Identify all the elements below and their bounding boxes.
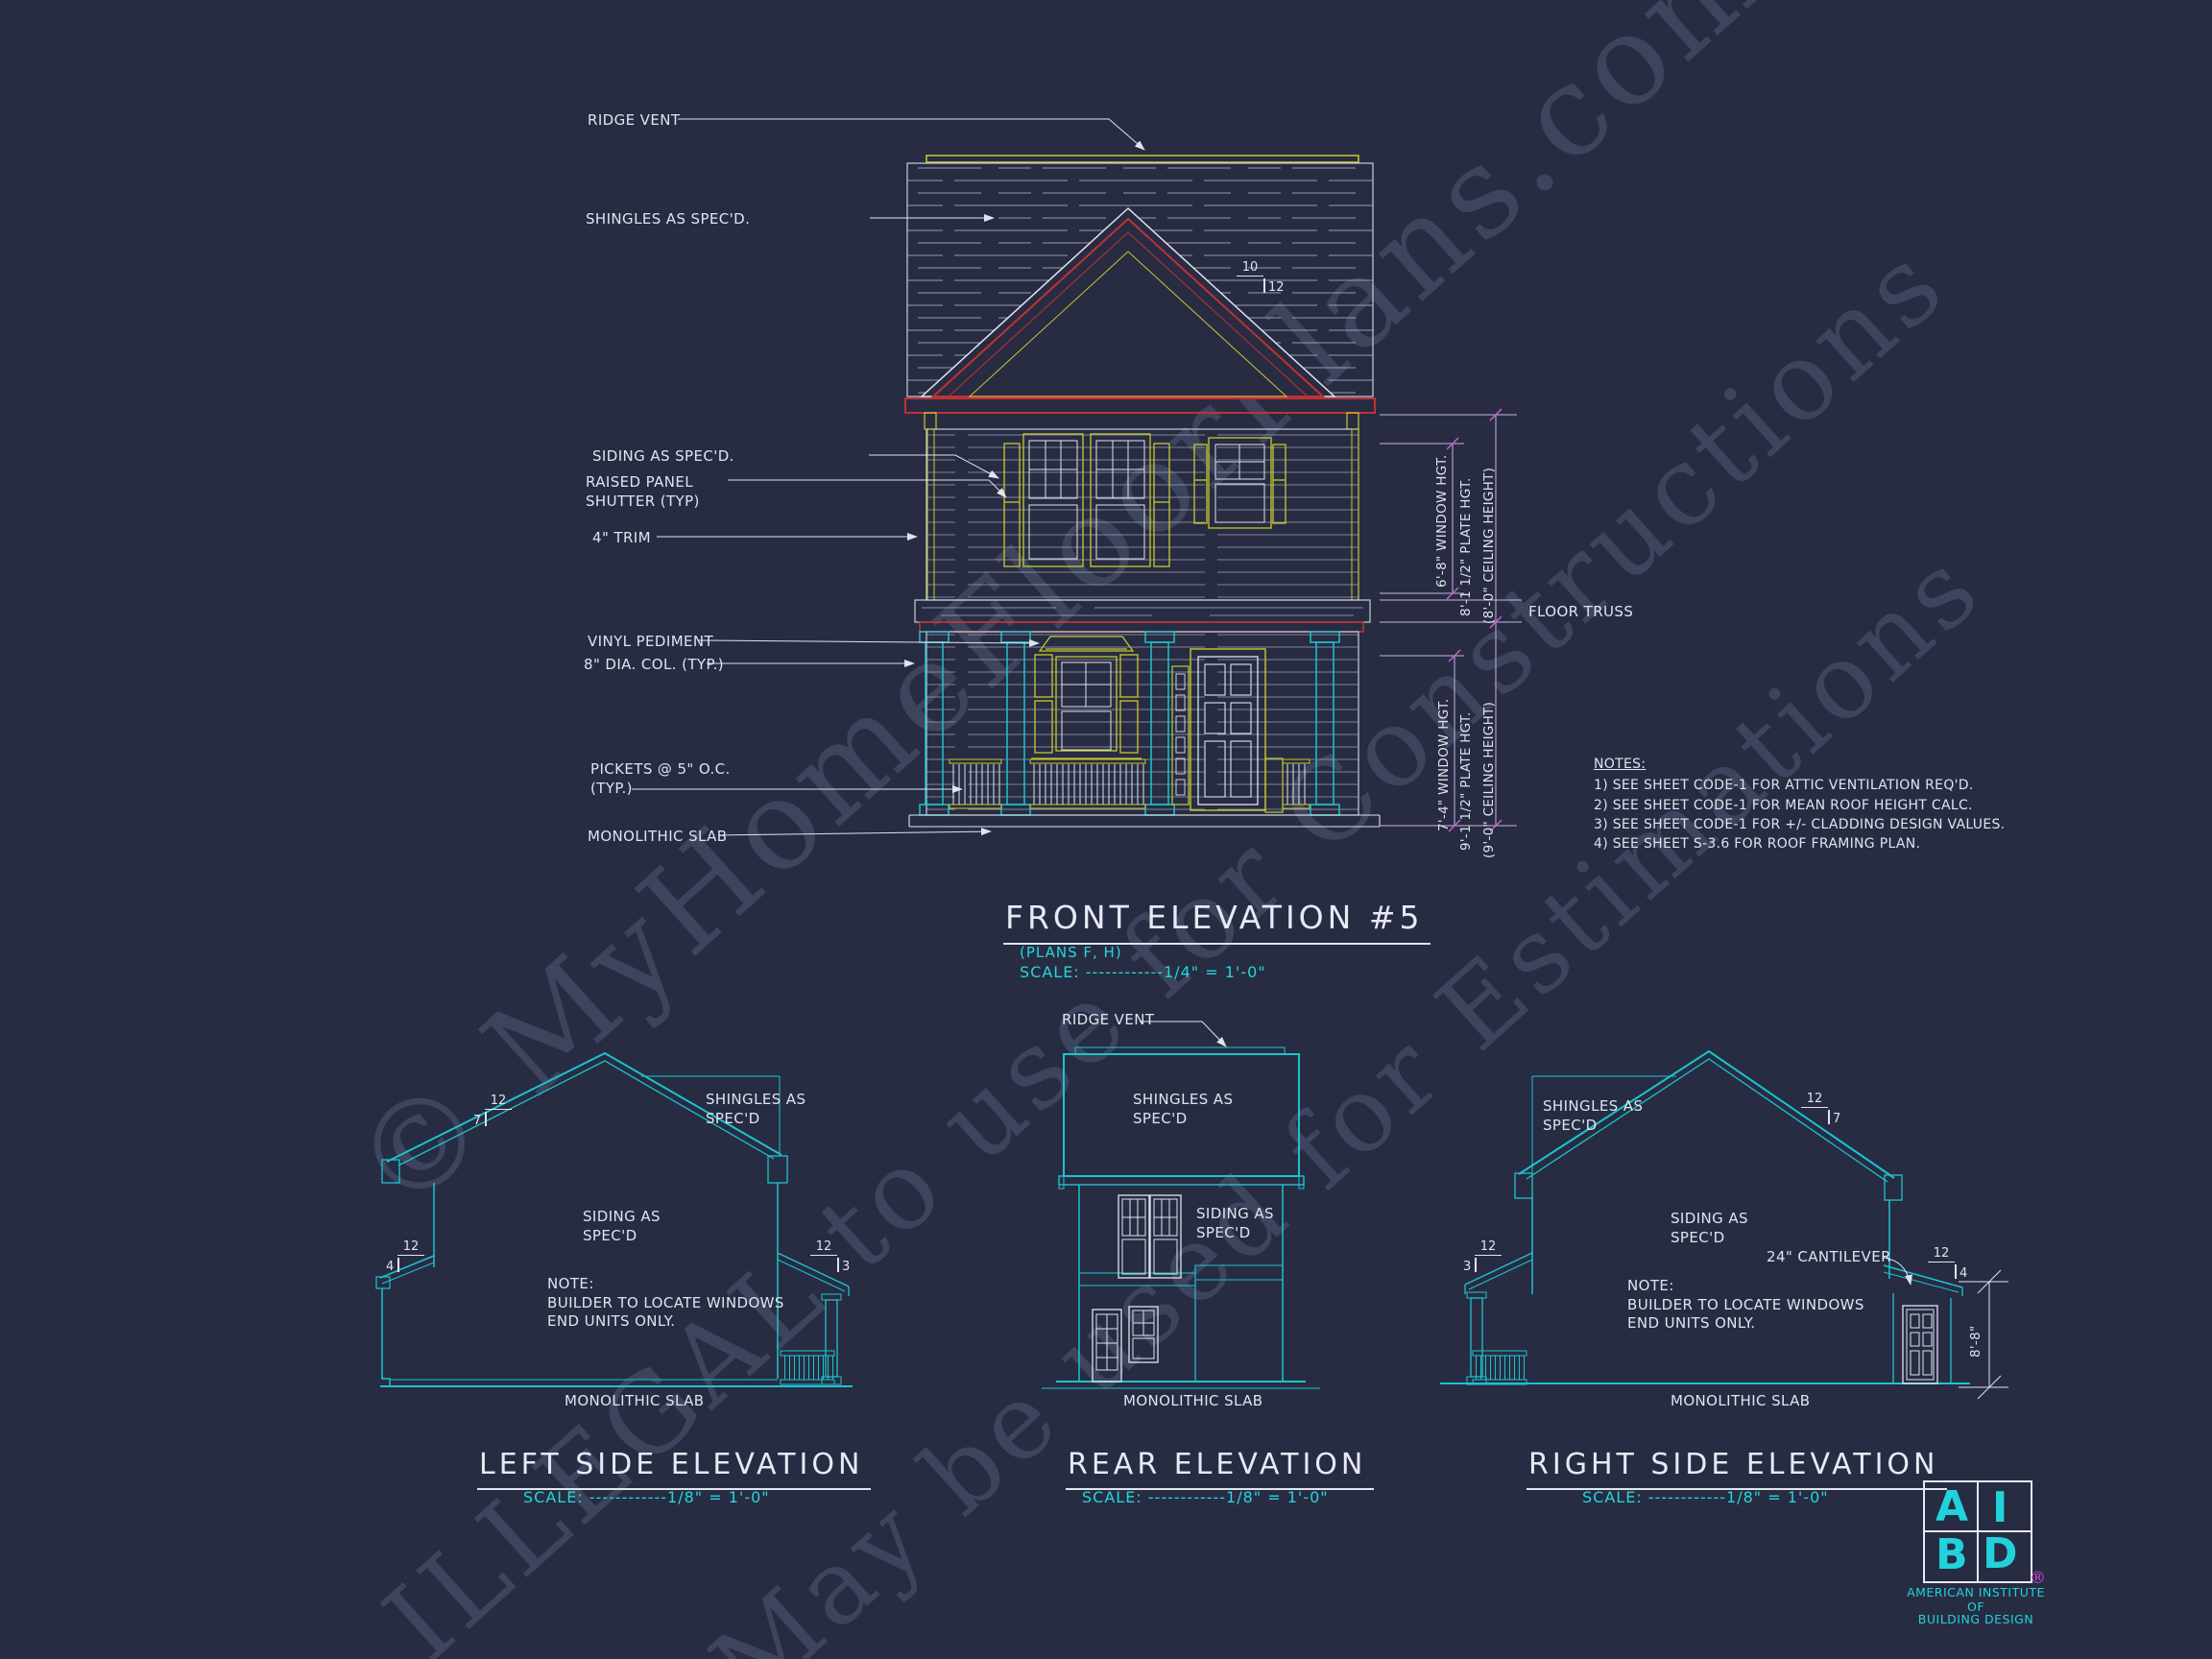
right-pitch-shed: 12 4	[1928, 1246, 1955, 1262]
right-elevation-title: RIGHT SIDE ELEVATION	[1527, 1448, 1947, 1490]
left-pitch-porch: 12 3	[810, 1239, 837, 1256]
dim-window-hgt-2f: 6'-8" WINDOW HGT.	[1434, 454, 1450, 588]
pitch-top-value: 12	[810, 1239, 837, 1256]
logo-letter-b: B	[1935, 1534, 1968, 1576]
pitch-side-value: 4	[1960, 1266, 1967, 1281]
rear-label-ridge-vent: RIDGE VENT	[1062, 1011, 1154, 1030]
notes-block: NOTES: 1) SEE SHEET CODE-1 FOR ATTIC VEN…	[1594, 755, 2005, 854]
pitch-top-value: 12	[1928, 1246, 1955, 1262]
note-item: 4) SEE SHEET S-3.6 FOR ROOF FRAMING PLAN…	[1594, 834, 2005, 854]
right-height-dim-text: 8'-8"	[1968, 1326, 1984, 1358]
logo-org-line3: BUILDING DESIGN	[1904, 1612, 2048, 1626]
note-item: 3) SEE SHEET CODE-1 FOR +/- CLADDING DES…	[1594, 815, 2005, 834]
front-elevation-title: FRONT ELEVATION #5	[1003, 899, 1431, 945]
left-elevation-title: LEFT SIDE ELEVATION	[477, 1448, 871, 1490]
front-label-column: 8" DIA. COL. (TYP.)	[584, 656, 724, 675]
pitch-top-value: 12	[485, 1094, 512, 1110]
front-label-trim: 4" TRIM	[592, 529, 651, 548]
front-label-floor-truss: FLOOR TRUSS	[1528, 603, 1633, 622]
right-elevation-scale: SCALE: ------------1/8" = 1'-0"	[1582, 1488, 1829, 1506]
logo-divider-vertical	[1977, 1482, 1979, 1581]
left-pitch-shed: 12 4	[397, 1239, 424, 1256]
pitch-top-value: 10	[1237, 260, 1263, 276]
rear-elevation-title: REAR ELEVATION	[1066, 1448, 1374, 1490]
aibd-logo: A I B D	[1923, 1480, 2032, 1583]
right-label-cantilever: 24" CANTILEVER	[1767, 1248, 1891, 1267]
right-elevation-door	[1903, 1306, 1937, 1383]
right-height-dimension	[1959, 1270, 2008, 1399]
right-label-siding: SIDING AS SPEC'D	[1671, 1210, 1748, 1247]
pitch-side-value: 12	[1268, 280, 1285, 295]
pitch-side-value: 7	[473, 1114, 481, 1128]
rear-label-slab: MONOLITHIC SLAB	[1123, 1392, 1262, 1411]
dim-window-hgt-1f: 7'-4" WINDOW HGT.	[1436, 698, 1452, 831]
right-label-shingles: SHINGLES AS SPEC'D	[1543, 1097, 1643, 1135]
logo-letter-i: I	[1992, 1487, 2008, 1529]
pitch-top-value: 12	[1475, 1239, 1502, 1256]
front-label-siding: SIDING AS SPEC'D.	[592, 447, 734, 467]
blueprint-sheet: © MyHomeFloorPlans.com ILLEGAL to use fo…	[0, 0, 2212, 1659]
note-item: 1) SEE SHEET CODE-1 FOR ATTIC VENTILATIO…	[1594, 776, 2005, 795]
left-label-note: NOTE: BUILDER TO LOCATE WINDOWS END UNIT…	[547, 1275, 784, 1332]
dim-ceiling-hgt-2f: (8'-0" CEILING HEIGHT)	[1481, 468, 1497, 624]
logo-org-line1: AMERICAN INSTITUTE	[1904, 1585, 2048, 1599]
pitch-top-value: 12	[1801, 1092, 1828, 1108]
pitch-side-value: 7	[1833, 1112, 1840, 1126]
notes-heading: NOTES:	[1594, 755, 2005, 774]
dim-ceiling-hgt-1f: (9'-0" CEILING HEIGHT)	[1481, 702, 1497, 858]
left-label-slab: MONOLITHIC SLAB	[565, 1392, 704, 1411]
note-item: 2) SEE SHEET CODE-1 FOR MEAN ROOF HEIGHT…	[1594, 796, 2005, 815]
right-label-slab: MONOLITHIC SLAB	[1671, 1392, 1810, 1411]
pitch-side-value: 3	[1463, 1260, 1471, 1274]
rear-label-shingles: SHINGLES AS SPEC'D	[1133, 1091, 1233, 1128]
front-elevation-scale: SCALE: ------------1/4" = 1'-0"	[1020, 963, 1266, 981]
front-label-shingles: SHINGLES AS SPEC'D.	[586, 210, 750, 229]
dim-plate-hgt-1f: 9'-1 1/2" PLATE HGT.	[1458, 711, 1474, 851]
right-pitch-porch: 12 3	[1475, 1239, 1502, 1256]
left-elevation-scale: SCALE: ------------1/8" = 1'-0"	[523, 1488, 770, 1506]
right-label-note: NOTE: BUILDER TO LOCATE WINDOWS END UNIT…	[1627, 1277, 1864, 1334]
logo-letter-d: D	[1983, 1533, 2018, 1575]
right-pitch-main: 12 7	[1801, 1092, 1828, 1108]
pitch-side-value: 4	[386, 1260, 394, 1274]
left-pitch-main: 12 7	[485, 1094, 512, 1110]
front-label-ridge-vent: RIDGE VENT	[588, 111, 680, 131]
logo-letter-a: A	[1935, 1486, 1968, 1528]
rear-elevation-scale: SCALE: ------------1/8" = 1'-0"	[1082, 1488, 1329, 1506]
pitch-top-value: 12	[397, 1239, 424, 1256]
front-label-pickets: PICKETS @ 5" O.C. (TYP.)	[590, 760, 731, 798]
left-label-siding: SIDING AS SPEC'D	[583, 1208, 661, 1245]
rear-elevation-windows	[1093, 1195, 1181, 1382]
left-label-shingles: SHINGLES AS SPEC'D	[706, 1091, 805, 1128]
front-elevation-plans: (PLANS F, H)	[1020, 944, 1122, 961]
front-label-shutter: RAISED PANEL SHUTTER (TYP)	[586, 473, 700, 511]
front-label-pediment: VINYL PEDIMENT	[588, 633, 713, 652]
pitch-side-value: 3	[842, 1260, 850, 1274]
front-elevation-drawing	[905, 156, 1380, 827]
front-label-slab: MONOLITHIC SLAB	[588, 828, 727, 847]
dim-plate-hgt-2f: 8'-1 1/2" PLATE HGT.	[1458, 477, 1474, 616]
front-pitch-marker: 10 12	[1237, 260, 1263, 276]
rear-label-siding: SIDING AS SPEC'D	[1196, 1205, 1274, 1242]
